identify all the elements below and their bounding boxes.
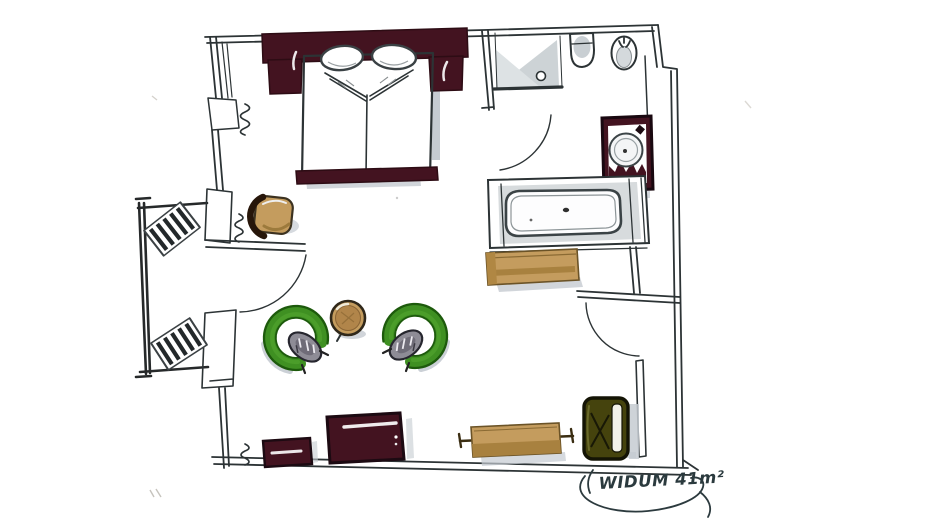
mattress-center-line <box>366 95 367 176</box>
radiator-window <box>241 104 250 135</box>
deck-chair-2 <box>151 318 207 370</box>
minibar-shadow <box>312 441 318 463</box>
floor-plan-drawing: WIDUM 41m² <box>0 0 940 526</box>
sideboard <box>486 249 583 292</box>
dresser-knob-2 <box>395 443 398 446</box>
room-label: WIDUM 41m² <box>580 467 725 517</box>
wall-left-window-segment <box>210 37 222 98</box>
wall-right-inner <box>652 27 677 467</box>
label-swoosh-tail <box>700 492 710 517</box>
double-bed <box>262 28 468 189</box>
bathtub <box>488 176 649 252</box>
pencil-mark-right <box>745 101 751 108</box>
floor-plan-canvas: WIDUM 41m² <box>0 0 940 526</box>
wall-left-lower <box>219 388 229 468</box>
balcony-wall-top <box>136 198 207 208</box>
tub-mark <box>530 219 533 222</box>
desk-chair <box>250 195 299 236</box>
pencil-mark-top-left <box>152 96 157 100</box>
balcony-door-leaf-lower <box>202 310 236 388</box>
minibar-cabinet <box>263 438 318 467</box>
shower-drain <box>537 72 546 81</box>
bidet <box>612 37 637 70</box>
radiators <box>235 104 250 465</box>
dresser-shadow <box>406 418 414 459</box>
pencil-dot-center <box>396 197 398 199</box>
dresser-knob-1 <box>394 435 397 438</box>
balcony-door-swing-arc <box>240 255 306 312</box>
room-label-text: WIDUM 41m² <box>598 467 725 493</box>
wall-nook-horizontal <box>577 291 680 303</box>
duvet-fold-lines <box>325 70 413 101</box>
wall-left-mid <box>212 130 223 190</box>
shower-edge-thick <box>494 87 562 89</box>
dresser-body <box>327 413 404 463</box>
toilet-shading <box>574 36 591 58</box>
bathroom <box>488 33 653 252</box>
bathroom-door-swing-arc <box>500 115 551 170</box>
wall-nook-vertical <box>630 247 640 293</box>
sideboard-stripe <box>490 269 575 273</box>
shower <box>494 33 562 89</box>
wall-pier <box>208 98 239 130</box>
radiator-bottom <box>241 444 249 465</box>
bench <box>459 423 573 466</box>
bidet-basin <box>617 47 632 68</box>
washbasin-drain <box>623 149 627 153</box>
dresser <box>327 413 414 463</box>
luggage-rack-shadow-right <box>629 404 639 459</box>
tub-drain <box>563 208 569 212</box>
balcony-door-leaf-upper <box>205 189 232 243</box>
armchair-right <box>383 304 447 371</box>
side-table <box>331 301 366 341</box>
luggage-rack-strap <box>612 404 622 452</box>
headboard-left-wing <box>268 59 302 94</box>
entry-door-swing-arc <box>586 303 639 356</box>
minibar-highlight <box>272 451 301 453</box>
toilet <box>570 33 594 67</box>
window-glazing-lines <box>222 42 232 98</box>
pencil-mark-bottom-left <box>150 489 161 497</box>
deck-chair-1 <box>144 202 200 256</box>
wall-bathroom-partition-stub <box>482 31 494 110</box>
luggage-rack <box>584 398 639 459</box>
radiator-wall <box>235 214 243 242</box>
armchair-left <box>264 306 328 373</box>
